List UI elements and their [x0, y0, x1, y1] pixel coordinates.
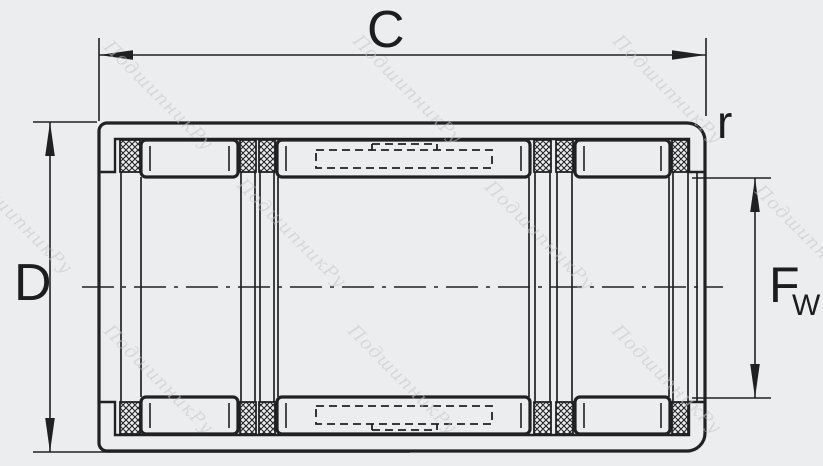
cage-block: [120, 140, 140, 172]
cage-block: [240, 140, 256, 172]
cage-block: [556, 402, 573, 434]
cage-block: [534, 140, 551, 172]
bearing-drawing-canvas: C D r F W ПодшипникРу ПодшипникРу Подшип…: [0, 0, 823, 466]
cage-block: [240, 402, 256, 434]
dimension-fw-label-sub: W: [792, 289, 821, 322]
cage-block: [120, 402, 140, 434]
bearing-cross-section-drawing: C D r F W ПодшипникРу ПодшипникРу Подшип…: [0, 0, 823, 466]
cage-block: [556, 140, 573, 172]
cage-block: [259, 402, 275, 434]
cage-block: [259, 140, 275, 172]
cage-block: [534, 402, 551, 434]
cage-block: [672, 140, 688, 172]
